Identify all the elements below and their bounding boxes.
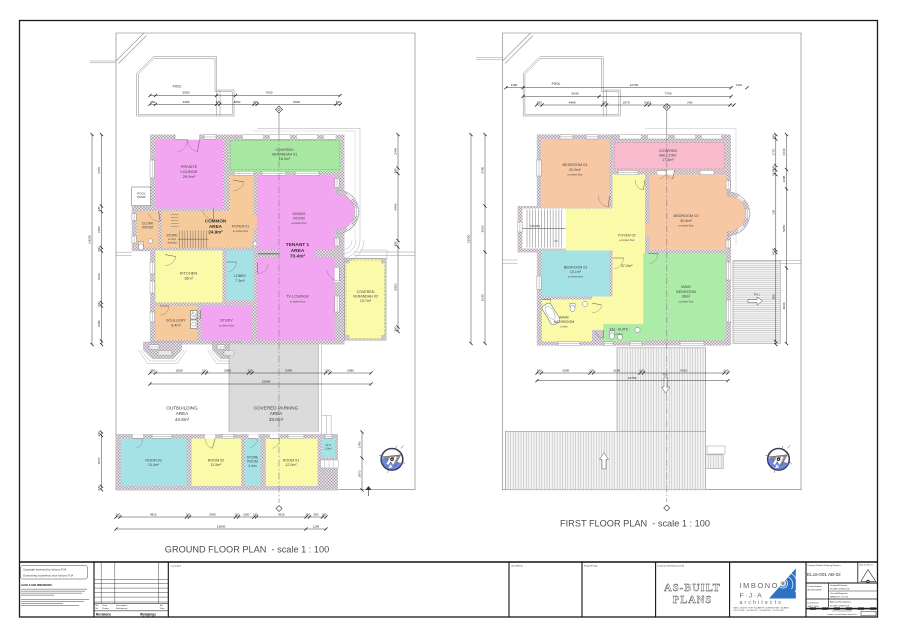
svg-text:15580: 15580: [262, 379, 271, 383]
svg-text:2330: 2330: [97, 320, 101, 327]
svg-text:UP: UP: [554, 239, 558, 243]
svg-text:130: 130: [639, 369, 644, 373]
svg-text:POOL: POOL: [552, 82, 561, 86]
svg-text:290: 290: [771, 134, 775, 139]
svg-text:3190: 3190: [613, 369, 620, 373]
svg-text:240: 240: [116, 513, 121, 517]
svg-text:240: 240: [305, 513, 310, 517]
svg-text:STUDY: STUDY: [220, 319, 233, 323]
svg-text:330: 330: [602, 101, 607, 105]
svg-text:Nr.: Nr.: [96, 607, 99, 610]
svg-text:ex timber floor: ex timber floor: [568, 276, 583, 279]
svg-text:DINING: DINING: [293, 212, 306, 216]
svg-text:AS INDICATED: AS INDICATED: [808, 589, 823, 592]
svg-text:Copyright reserved by Imbono F: Copyright reserved by Imbono FJA: [23, 567, 66, 571]
svg-text:130: 130: [771, 209, 775, 214]
svg-text:architects: architects: [740, 600, 783, 606]
svg-text:3080: 3080: [224, 369, 231, 373]
svg-text:ex timber floor: ex timber floor: [678, 300, 693, 303]
svg-text:2400: 2400: [97, 226, 101, 233]
svg-text:3630: 3630: [278, 513, 285, 517]
svg-text:12.0m²: 12.0m²: [285, 463, 297, 467]
svg-text:13930: 13930: [467, 234, 471, 243]
svg-text:FUORE JORGULIS: FUORE JORGULIS: [830, 606, 850, 608]
svg-text:4940: 4940: [394, 203, 398, 210]
svg-text:Datum: Datum: [103, 607, 110, 610]
svg-text:COVERED: COVERED: [275, 148, 294, 152]
svg-text:1280: 1280: [511, 83, 518, 87]
svg-text:ex timber floor: ex timber floor: [290, 301, 305, 304]
svg-text:6130: 6130: [481, 294, 485, 301]
svg-text:BEDROOM 01: BEDROOM 01: [563, 163, 588, 167]
svg-text:ROOM: ROOM: [293, 217, 304, 221]
svg-text:ex timber floor: ex timber floor: [219, 324, 234, 327]
svg-text:150: 150: [235, 513, 240, 517]
svg-text:Drawn/Geteken: Drawn/Geteken: [808, 585, 823, 588]
svg-text:Consultant: Consultant: [171, 565, 182, 568]
svg-text:BALCONY: BALCONY: [659, 154, 677, 158]
svg-text:1870: 1870: [358, 470, 362, 477]
svg-text:4480: 4480: [569, 101, 576, 105]
svg-text:300: 300: [336, 100, 341, 104]
svg-text:29.9m²: 29.9m²: [183, 174, 196, 179]
svg-text:Deur: Deur: [160, 607, 165, 610]
svg-text:PLANS: PLANS: [673, 595, 712, 606]
svg-text:5340: 5340: [285, 369, 292, 373]
svg-text:5410: 5410: [680, 369, 687, 373]
svg-text:1298: 1298: [782, 175, 786, 182]
svg-text:230: 230: [248, 369, 253, 373]
svg-text:ROOM 03: ROOM 03: [145, 459, 161, 463]
svg-text:4.4m²: 4.4m²: [248, 464, 258, 468]
svg-text:MAIN: MAIN: [560, 316, 569, 320]
svg-text:8730: 8730: [771, 248, 775, 255]
svg-text:950: 950: [314, 513, 319, 517]
svg-text:5050: 5050: [183, 91, 190, 95]
svg-text:PUMP: PUMP: [137, 195, 146, 199]
svg-text:240: 240: [537, 369, 542, 373]
svg-text:ROOM: ROOM: [142, 226, 153, 230]
svg-text:STAIRS: STAIRS: [530, 224, 541, 228]
svg-text:17.6m²: 17.6m²: [662, 158, 674, 162]
svg-text:8.4m²: 8.4m²: [171, 323, 181, 327]
svg-text:12760: 12760: [628, 376, 637, 380]
svg-text:ROOM 02: ROOM 02: [208, 459, 224, 463]
svg-text:3000: 3000: [481, 225, 485, 232]
svg-text:2670: 2670: [623, 101, 630, 105]
svg-text:1190: 1190: [313, 524, 320, 528]
svg-text:F·J·A: F·J·A: [740, 593, 764, 600]
svg-text:3830: 3830: [233, 100, 240, 104]
svg-text:18.3m²: 18.3m²: [279, 157, 291, 161]
svg-text:VERANDAH 02: VERANDAH 02: [353, 295, 378, 299]
svg-text:BEDROOM: BEDROOM: [676, 290, 696, 294]
svg-text:1180: 1180: [243, 513, 250, 517]
svg-text:BEDROOM 02: BEDROOM 02: [674, 214, 699, 218]
svg-text:380: 380: [771, 294, 775, 299]
svg-text:12760: 12760: [630, 83, 639, 87]
svg-text:30.8m²: 30.8m²: [680, 219, 693, 223]
svg-text:Client/Kliënt: Client/Kliënt: [511, 565, 523, 568]
svg-text:15.1m²: 15.1m²: [570, 270, 582, 274]
svg-text:Drawing Number/Tekening Nommer: Drawing Number/Tekening Nommer: [808, 564, 841, 567]
svg-text:TENANT 1: TENANT 1: [286, 242, 310, 248]
svg-text:380: 380: [150, 100, 155, 104]
svg-text:130: 130: [186, 513, 191, 517]
svg-text:AS-BUILT: AS-BUILT: [664, 583, 721, 594]
svg-text:ex tiles: ex tiles: [560, 326, 568, 329]
svg-text:20.9m²: 20.9m²: [569, 168, 582, 172]
svg-text:GROUND FLOOR PLAN - scale 1 :: GROUND FLOOR PLAN - scale 1 : 100: [165, 545, 329, 555]
svg-text:COVERED: COVERED: [357, 290, 375, 294]
svg-text:COVERED: COVERED: [659, 149, 678, 153]
svg-text:6060: 6060: [782, 302, 786, 309]
svg-text:Revisions: Revisions: [96, 612, 111, 616]
svg-text:3300: 3300: [562, 369, 569, 373]
svg-text:5283: 5283: [782, 225, 786, 232]
svg-text:Outeursreg voorbehou deur Imbo: Outeursreg voorbehou deur Imbono FJA: [23, 573, 73, 577]
svg-text:BEDROOM 03: BEDROOM 03: [564, 266, 588, 270]
svg-text:230: 230: [97, 246, 101, 251]
svg-text:230: 230: [216, 100, 221, 104]
svg-text:FIRST FLOOR PLAN - scale 1 :: FIRST FLOOR PLAN - scale 1 : 100: [560, 519, 710, 529]
svg-text:15.7m²: 15.7m²: [360, 299, 372, 303]
svg-text:FALL: FALL: [754, 292, 761, 296]
svg-text:5900: 5900: [394, 283, 398, 290]
svg-text:FUORE JORGULIS: FUORE JORGULIS: [830, 589, 850, 591]
svg-text:3270: 3270: [97, 457, 101, 464]
svg-text:11.5m²: 11.5m²: [211, 463, 223, 467]
svg-text:3440: 3440: [97, 273, 101, 280]
svg-text:3340: 3340: [209, 513, 216, 517]
svg-text:STORE: STORE: [167, 234, 178, 238]
svg-text:4780: 4780: [481, 167, 485, 174]
svg-text:ROOM 01: ROOM 01: [283, 459, 299, 463]
svg-text:3200: 3200: [176, 369, 183, 373]
svg-text:Project/Projek: Project/Projek: [584, 565, 599, 568]
svg-text:EN - SUITE: EN - SUITE: [610, 328, 629, 332]
svg-text:ex timber floor: ex timber floor: [678, 225, 693, 228]
svg-text:LOBBY: LOBBY: [234, 274, 247, 278]
svg-text:300: 300: [394, 326, 398, 331]
svg-text:FOYER 01: FOYER 01: [232, 225, 249, 229]
svg-text:do not scale drawings: do not scale drawings: [832, 610, 851, 613]
svg-text:240: 240: [322, 513, 327, 517]
svg-text:4810: 4810: [150, 513, 157, 517]
svg-text:Date: Date: [103, 604, 108, 607]
svg-text:380: 380: [150, 369, 155, 373]
svg-text:230: 230: [202, 369, 207, 373]
svg-text:16m²: 16m²: [184, 276, 194, 281]
svg-text:EAST LONDON PORT ELIZABETH Q: EAST LONDON PORT ELIZABETH QUEENSTOWN AT…: [734, 607, 790, 610]
svg-text:MAIN: MAIN: [681, 285, 691, 289]
svg-text:7630: 7630: [266, 91, 273, 95]
svg-text:70.4m²: 70.4m²: [290, 254, 306, 260]
svg-text:Approved/Goedgekeur: Approved/Goedgekeur: [830, 600, 851, 603]
svg-text:130: 130: [253, 513, 258, 517]
svg-text:ex timber floor: ex timber floor: [291, 222, 306, 225]
svg-text:ex timber floor: ex timber floor: [567, 174, 582, 177]
svg-text:5340: 5340: [293, 100, 300, 104]
svg-text:LEVELS AND DIMENSIONS.: LEVELS AND DIMENSIONS.: [21, 584, 53, 587]
svg-text:240: 240: [687, 101, 692, 105]
svg-text:1780: 1780: [358, 441, 362, 448]
svg-text:Description: Description: [116, 604, 128, 607]
svg-text:AREA: AREA: [176, 411, 189, 416]
svg-text:Wysigings: Wysigings: [140, 612, 156, 616]
svg-text:380: 380: [394, 168, 398, 173]
svg-text:38m²: 38m²: [682, 295, 691, 299]
svg-text:240: 240: [97, 485, 101, 490]
svg-text:5070: 5070: [771, 169, 775, 176]
svg-text:300: 300: [325, 369, 330, 373]
svg-text:SCULLERY: SCULLERY: [166, 319, 186, 323]
svg-text:480: 480: [394, 241, 398, 246]
svg-text:Beskrywing: Beskrywing: [116, 607, 128, 610]
svg-text:VERANDAH 01: VERANDAH 01: [272, 153, 298, 157]
svg-text:4480: 4480: [183, 100, 190, 104]
svg-text:AREA: AREA: [209, 224, 223, 229]
svg-text:BATHROOM: BATHROOM: [554, 320, 575, 324]
svg-text:1770: 1770: [771, 149, 775, 156]
svg-text:Sync this Rev no:: Sync this Rev no:: [859, 564, 873, 567]
svg-text:1.8m²: 1.8m²: [324, 447, 332, 451]
svg-text:33.0m²: 33.0m²: [269, 417, 284, 422]
svg-text:2340: 2340: [782, 148, 786, 155]
svg-text:240: 240: [723, 369, 728, 373]
svg-text:AREA: AREA: [270, 411, 283, 416]
svg-text:Date/Datum: Date/Datum: [808, 602, 819, 605]
svg-text:AREA: AREA: [291, 248, 305, 254]
svg-text:FOYER 02: FOYER 02: [618, 234, 635, 238]
svg-text:ex timber floor: ex timber floor: [233, 230, 248, 233]
svg-text:13830: 13830: [217, 524, 226, 528]
svg-text:240: 240: [97, 431, 101, 436]
svg-text:043 721 0662 041 363 0471: 043 721 0662 041 363 0471 045 838 6240 0…: [734, 610, 784, 612]
svg-text:TV LOUNGE: TV LOUNGE: [286, 294, 309, 299]
svg-text:230: 230: [253, 100, 258, 104]
svg-text:7.3m²: 7.3m²: [235, 279, 245, 283]
svg-text:13030: 13030: [88, 235, 92, 244]
svg-text:COMMON: COMMON: [205, 219, 227, 224]
svg-text:OUTBUILDING: OUTBUILDING: [166, 406, 198, 411]
svg-text:POOL: POOL: [173, 84, 182, 88]
svg-text:130: 130: [589, 369, 594, 373]
svg-text:moenie van tekeninge afskaal n: moenie van tekeninge afskaal nie: [827, 613, 858, 616]
svg-text:BRADLEY LOOTS: BRADLEY LOOTS: [830, 596, 849, 599]
svg-text:44.8m²: 44.8m²: [175, 417, 190, 422]
svg-text:230: 230: [97, 206, 101, 211]
svg-text:IMBONO: IMBONO: [740, 581, 780, 590]
svg-text:37.2m²: 37.2m²: [621, 264, 634, 268]
svg-text:Designed/Ontwerp: Designed/Ontwerp: [830, 584, 848, 587]
svg-text:15.4m²: 15.4m²: [148, 463, 160, 467]
svg-text:ex tiles: ex tiles: [615, 333, 623, 336]
svg-text:5410: 5410: [644, 101, 651, 105]
svg-text:5040: 5040: [572, 92, 579, 96]
svg-text:ex timber floor: ex timber floor: [619, 239, 634, 242]
svg-text:230: 230: [97, 301, 101, 306]
svg-text:2980: 2980: [347, 369, 354, 373]
svg-text:1110: 1110: [736, 83, 742, 87]
svg-text:2440: 2440: [394, 148, 398, 155]
svg-text:Drawing Title/Tekening Titel: Drawing Title/Tekening Titel: [658, 565, 685, 568]
svg-text:4470: 4470: [97, 167, 101, 174]
svg-text:COVERED PARKING: COVERED PARKING: [254, 406, 299, 411]
svg-text:380: 380: [537, 101, 542, 105]
svg-text:FALL: FALL: [663, 374, 669, 377]
svg-text:sheeting: sheeting: [167, 241, 177, 244]
svg-text:24.9m²: 24.9m²: [208, 230, 223, 235]
svg-text:EL16-001 AB-02: EL16-001 AB-02: [807, 572, 841, 577]
svg-text:Checked/Nagesien: Checked/Nagesien: [830, 593, 848, 595]
svg-text:7740: 7740: [665, 92, 672, 96]
